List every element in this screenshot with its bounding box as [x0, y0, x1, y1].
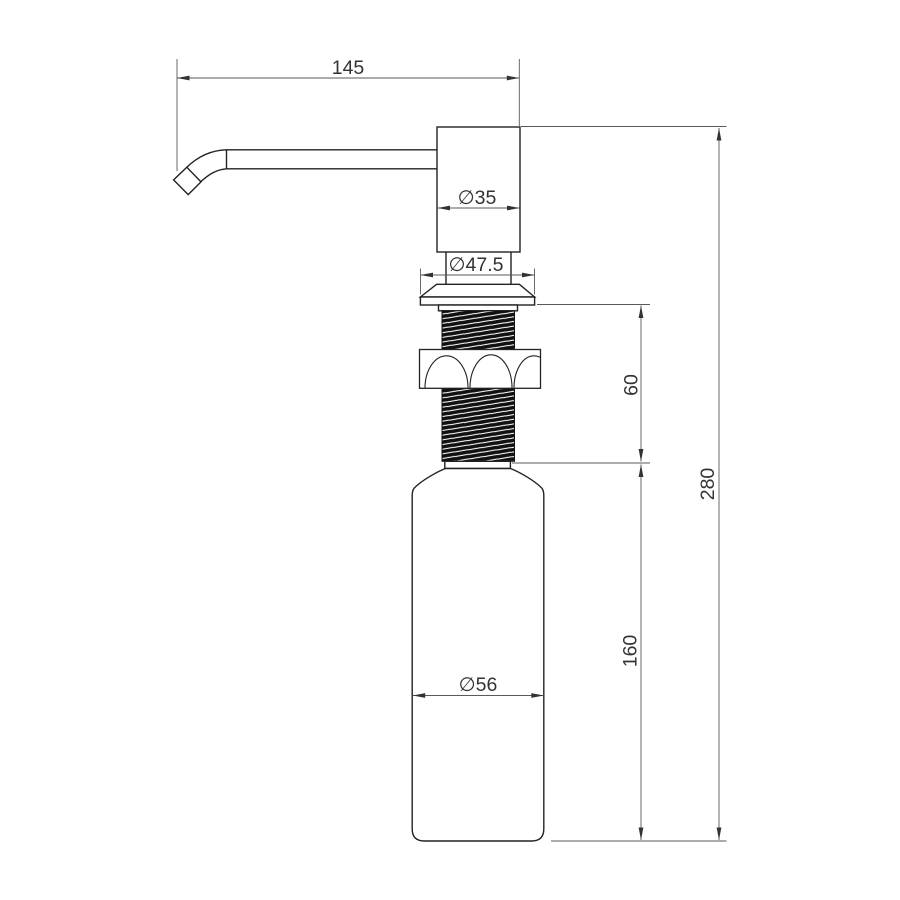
flange-plate	[420, 297, 534, 305]
mounting-nut	[420, 350, 555, 389]
dimension-label-280: 280	[697, 468, 719, 501]
dimension-label-dia-47-5: ∅47.5	[449, 254, 504, 276]
arrow-down	[639, 828, 644, 841]
mounting-thread-lower	[442, 388, 515, 461]
arrow-left	[177, 76, 190, 81]
soap-dispenser-technical-drawing: 145 ∅35 ∅47.5 ∅56	[0, 0, 900, 900]
arrow-down	[717, 828, 722, 841]
arrow-down	[639, 449, 644, 462]
bottle	[412, 469, 544, 842]
arrow-up	[639, 465, 644, 478]
spout	[174, 150, 437, 195]
arrow-right	[522, 273, 535, 278]
dimension-overall-height: 280	[697, 128, 721, 840]
arrow-right	[507, 76, 520, 81]
bottle-neck-ring	[445, 461, 511, 468]
dimension-label-dia-56: ∅56	[459, 674, 498, 696]
spout-outlet-tip	[174, 167, 201, 194]
dimension-label-160: 160	[620, 635, 642, 668]
flange-collar	[439, 305, 518, 311]
dimension-bottle-height: 160	[620, 465, 644, 841]
dimension-label-dia-35: ∅35	[458, 187, 497, 209]
spout-top-edge	[187, 150, 437, 167]
dimension-label-145: 145	[332, 57, 365, 79]
mounting-flange	[420, 284, 534, 311]
dimension-label-60: 60	[621, 374, 643, 396]
arrow-up	[717, 128, 722, 141]
drawing-canvas: 145 ∅35 ∅47.5 ∅56	[0, 0, 900, 900]
spout-bottom-edge	[201, 169, 437, 182]
nut-body	[420, 350, 541, 389]
arrow-up	[639, 306, 644, 319]
arrow-left	[421, 273, 434, 278]
flange-cone	[420, 284, 534, 297]
dimension-thread-section: 60	[621, 306, 644, 462]
mounting-thread-upper	[442, 311, 515, 350]
